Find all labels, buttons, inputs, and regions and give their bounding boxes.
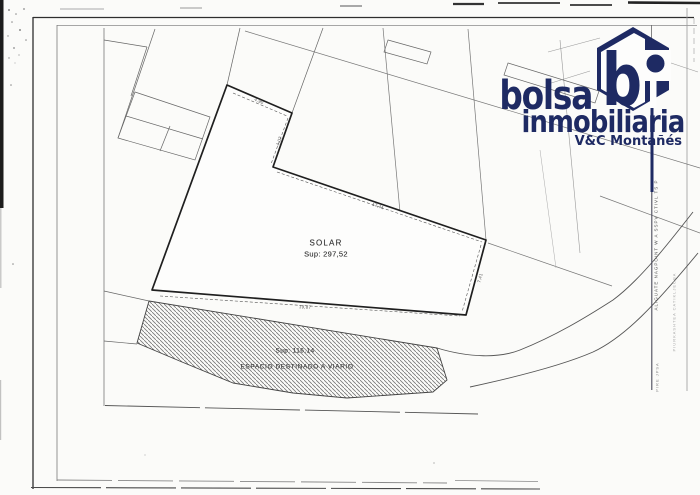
viario-area-label: Sup: 116,14 — [276, 348, 315, 355]
solar-parcel — [152, 85, 486, 316]
scanned-site-plan-page: { "logo": { "word1": "bolsa", "word2": "… — [0, 0, 700, 495]
margin-vertical-text: ALIGUATE NAGPOINT W A SSPV CTIVL TS P — [654, 179, 659, 310]
dimension-label: 19,87 — [299, 304, 312, 310]
margin-vertical-text: PIURKASHTEA CATIKLJEOBA — [672, 273, 677, 352]
solar-label: SOLAR — [309, 239, 342, 248]
logo-tagline: V&C Montañés — [575, 135, 682, 148]
margin-vertical-text: PIRE JPSA — [655, 362, 660, 391]
viario-label: ESPACIO DESTINADO A VIARIO — [240, 364, 353, 371]
logo-i-dot — [647, 55, 665, 73]
solar-area-label: Sup: 297,52 — [304, 250, 348, 259]
site-plan-drawing: b — [0, 0, 700, 495]
